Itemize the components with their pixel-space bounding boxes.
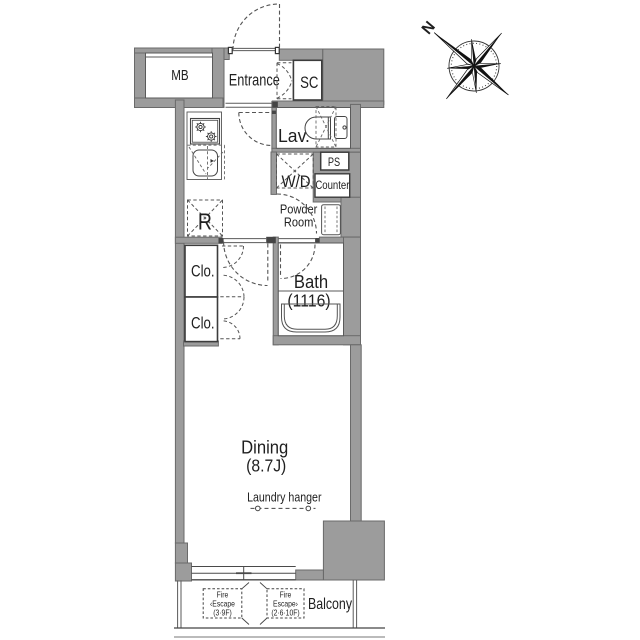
svg-text:(2·6·10F): (2·6·10F) [271,608,299,618]
svg-text:Entrance: Entrance [229,71,280,90]
svg-text:(8.7J): (8.7J) [246,456,286,476]
svg-text:Dining: Dining [241,437,288,458]
svg-text:Room: Room [284,215,313,230]
svg-text:PS: PS [328,157,340,169]
svg-text:(1116): (1116) [287,291,330,311]
svg-text:Clo.: Clo. [191,262,215,281]
svg-text:Bath: Bath [294,271,328,292]
svg-text:MB: MB [171,67,189,84]
svg-text:(3·9F): (3·9F) [213,608,231,618]
svg-text:Clo.: Clo. [191,314,215,333]
svg-text:R: R [198,209,212,235]
svg-text:W/D: W/D [281,173,310,191]
svg-text:SC: SC [300,74,319,93]
svg-text:Balcony: Balcony [308,595,352,613]
svg-text:Laundry hanger: Laundry hanger [247,491,322,505]
svg-text:Counter: Counter [315,179,349,192]
